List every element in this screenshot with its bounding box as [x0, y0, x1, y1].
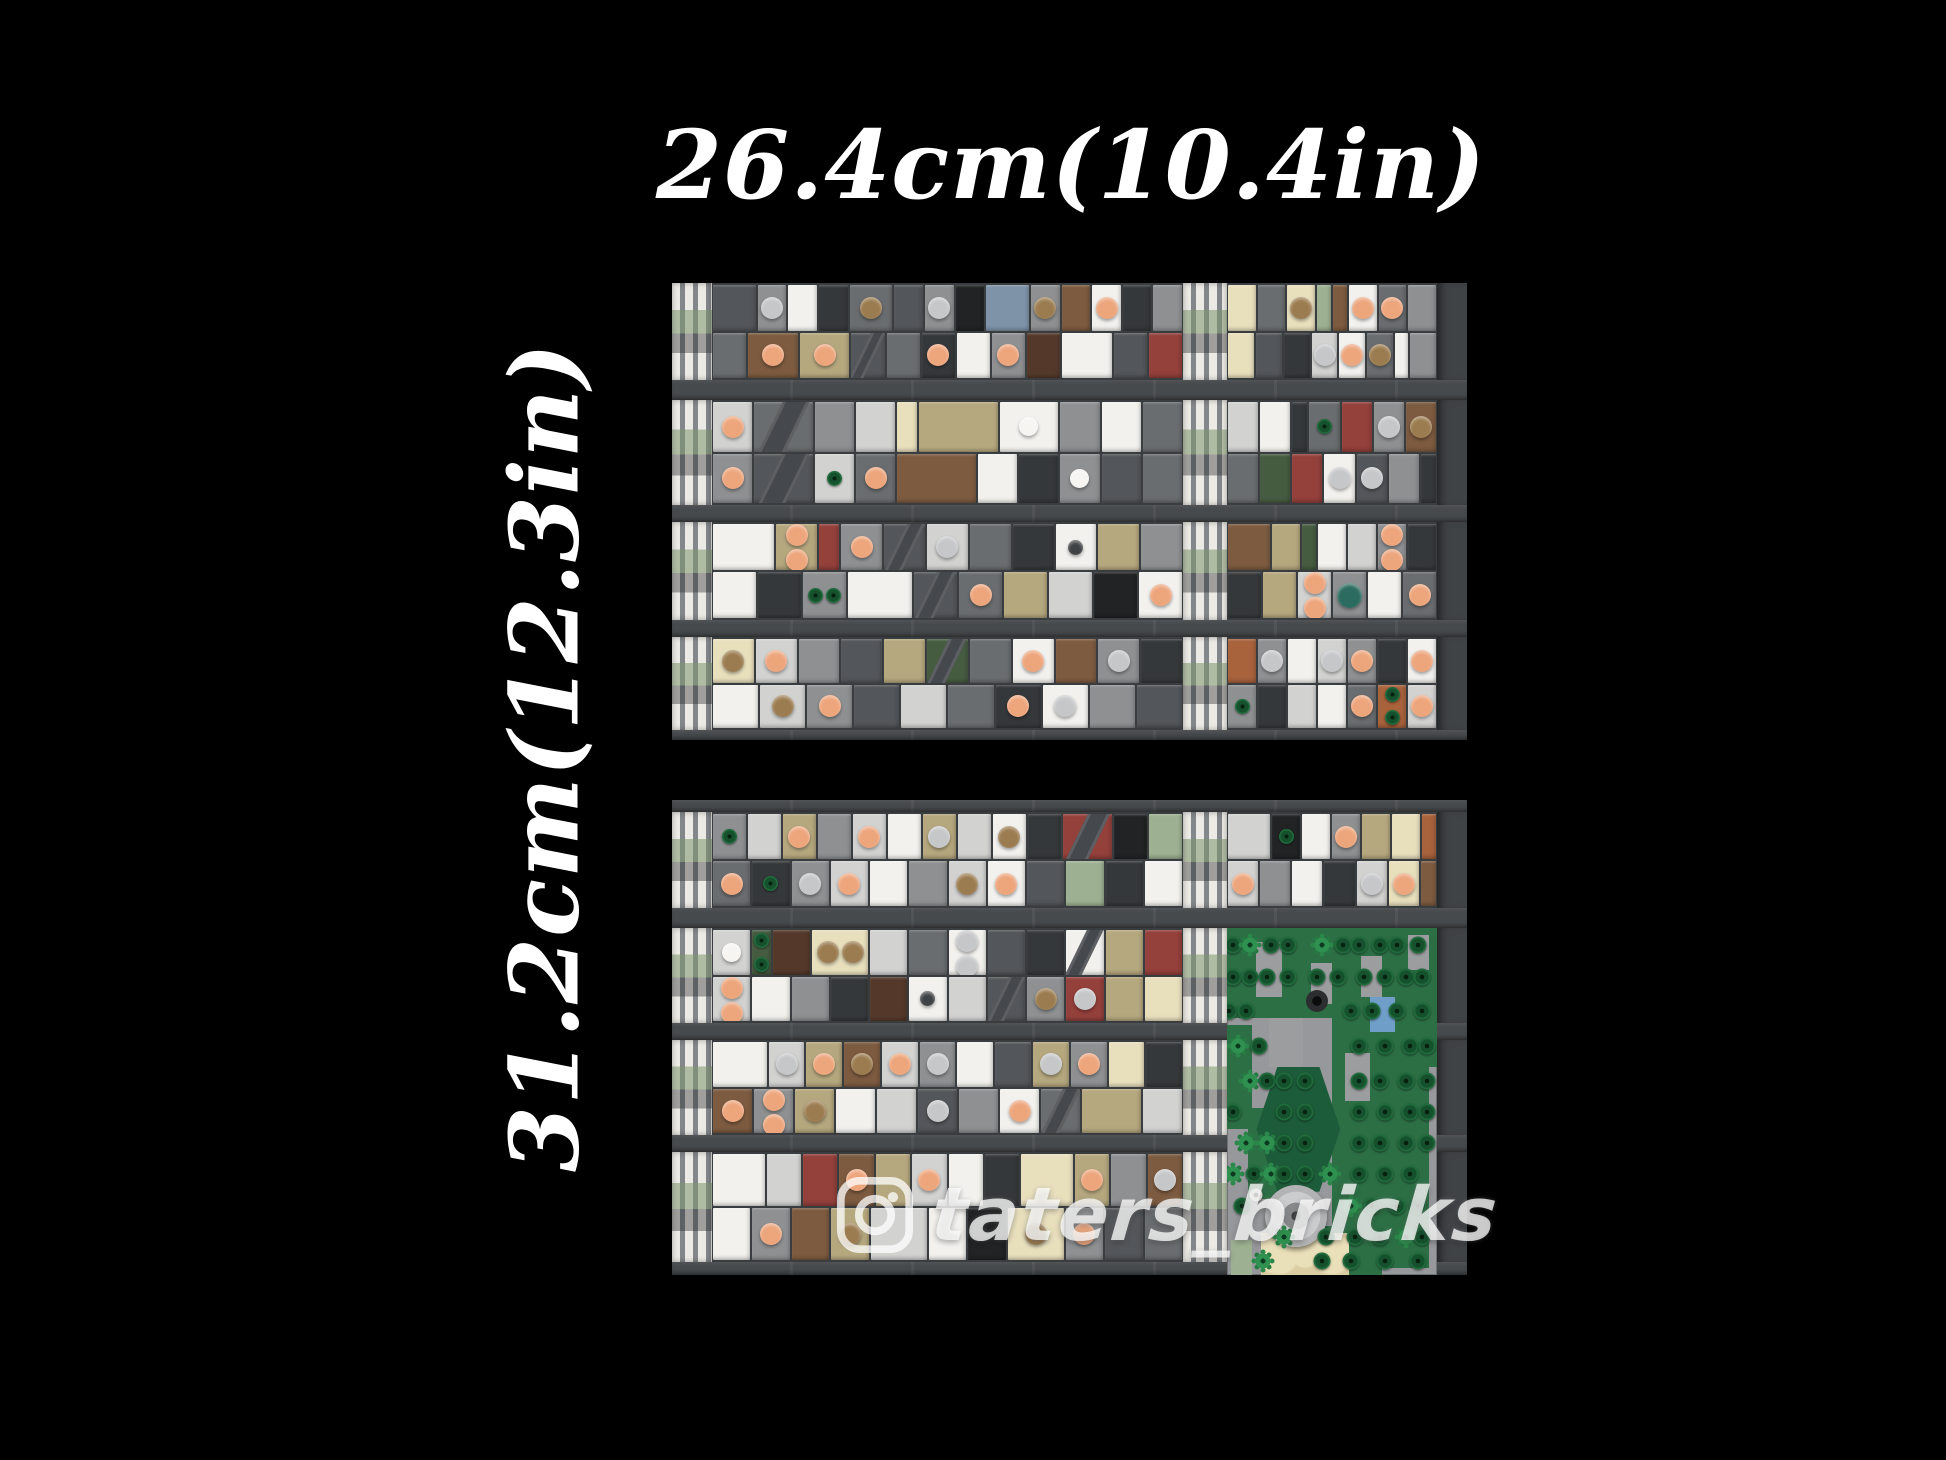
building-cell [1228, 333, 1254, 379]
furniture-circle [851, 1053, 873, 1075]
building-cell [988, 930, 1025, 975]
building-cell [713, 1089, 752, 1134]
building-strip [712, 860, 1183, 907]
furniture-circle [722, 650, 744, 672]
furniture-circle [788, 826, 810, 848]
tree-icon [1250, 1037, 1267, 1054]
building-cell [1000, 1089, 1039, 1134]
top-dimension-label: 26.4cm(10.4in) [656, 110, 1486, 221]
building-cell [1041, 1089, 1080, 1134]
building-cell [841, 639, 882, 683]
tree-icon [1237, 1003, 1254, 1020]
dark-bush [1306, 990, 1328, 1012]
furniture-circle [1150, 584, 1172, 606]
furniture-circle [1232, 873, 1254, 895]
building-cell [1288, 685, 1316, 729]
building-cell [1317, 285, 1331, 331]
tree-icon [1385, 687, 1400, 702]
building-cell [1153, 285, 1182, 331]
building-cell [1106, 861, 1143, 906]
street-row [672, 380, 1467, 400]
building-cell [1284, 333, 1310, 379]
building-strip [1227, 401, 1437, 453]
building-cell [1272, 814, 1300, 859]
tree-icon [1376, 1103, 1393, 1120]
building-cell [836, 1089, 875, 1134]
furniture-circle [786, 524, 808, 546]
crosswalk-column [1183, 522, 1227, 620]
building-cell [1378, 685, 1406, 729]
sidewalk-column [672, 812, 712, 908]
building-cell [1098, 639, 1139, 683]
watermark: taters_bricks [834, 1172, 1498, 1258]
building-cell [819, 524, 839, 570]
tree-icon [754, 933, 769, 948]
furniture-circle [1393, 873, 1415, 895]
building-cell [760, 685, 805, 729]
tree-icon [1414, 1003, 1431, 1020]
building-row [672, 400, 1467, 505]
building-cell [800, 333, 850, 379]
diagonal-street [754, 402, 813, 452]
building-cell [1106, 977, 1143, 1022]
furniture-circle [804, 1100, 826, 1122]
tree-icon [1243, 1073, 1258, 1088]
furniture-circle [858, 826, 880, 848]
furniture-circle [1381, 524, 1403, 546]
tree-icon [1376, 968, 1393, 985]
furniture-circle [956, 873, 978, 895]
building-strip [712, 284, 1183, 332]
building-strip [712, 523, 1183, 571]
building-strip [712, 976, 1183, 1023]
furniture-circle [860, 297, 882, 319]
building-cell [807, 685, 852, 729]
building-cell [920, 1042, 956, 1087]
building-cell [1378, 524, 1406, 570]
building-cell [877, 1089, 916, 1134]
tree-icon [827, 471, 842, 486]
building-cell [1143, 454, 1182, 504]
diagonal-street [988, 977, 1025, 1022]
building-cell [754, 454, 813, 504]
building-cell [1013, 639, 1054, 683]
building-cell [1143, 1089, 1182, 1134]
building-cell [1292, 861, 1322, 906]
building-cell [919, 402, 997, 452]
building-cell [1027, 930, 1064, 975]
stage: 26.4cm(10.4in) 31.2cm(12.3in) taters_bri… [0, 0, 1946, 1460]
furniture-circle [721, 1002, 743, 1022]
furniture-circle [762, 344, 784, 366]
building-cell [792, 861, 829, 906]
building-row [672, 283, 1467, 380]
building-cell [1228, 285, 1256, 331]
building-cell [925, 285, 954, 331]
building-strip [1227, 453, 1437, 505]
building-cell [1028, 814, 1061, 859]
furniture-circle [1361, 467, 1383, 489]
building-cell [992, 333, 1025, 379]
building-cell [713, 1208, 750, 1260]
furniture-circle [763, 1114, 785, 1134]
building-cell [767, 1154, 801, 1206]
tree-icon [1410, 937, 1427, 954]
building-cell [956, 285, 985, 331]
building-cell [1298, 572, 1331, 618]
building-block [1227, 637, 1437, 730]
paving-patch [1269, 1018, 1303, 1067]
furniture-circle [1411, 650, 1433, 672]
tree-icon [1397, 968, 1414, 985]
street-edge-column [1437, 1040, 1467, 1135]
furniture-circle [956, 930, 978, 952]
building-cell [870, 977, 907, 1022]
furniture-circle [765, 650, 787, 672]
building-cell [776, 524, 817, 570]
furniture-circle [1381, 549, 1403, 570]
building-cell [970, 639, 1011, 683]
tree-icon [1243, 938, 1258, 953]
building-cell [957, 1042, 993, 1087]
building-cell [927, 524, 968, 570]
furniture-circle [889, 1053, 911, 1075]
tree-icon [1334, 937, 1351, 954]
building-cell [978, 454, 1017, 504]
furniture-circle [722, 943, 741, 962]
furniture-circle [851, 536, 873, 558]
building-cell [1143, 402, 1182, 452]
building-cell [713, 572, 756, 618]
building-cell [957, 333, 990, 379]
tree-icon [1242, 968, 1259, 985]
building-cell [856, 454, 895, 504]
building-cell [897, 454, 975, 504]
building-cell [1090, 685, 1135, 729]
tree-icon [1238, 1136, 1253, 1151]
building-cell [754, 1089, 793, 1134]
furniture-circle [799, 873, 821, 895]
building-cell [914, 572, 957, 618]
furniture-circle [1381, 297, 1403, 319]
building-strip [712, 929, 1183, 976]
street-edge-column [1437, 283, 1467, 380]
furniture-circle [1410, 416, 1432, 438]
tree-icon [1279, 937, 1296, 954]
furniture-circle [1361, 873, 1383, 895]
building-cell [1395, 333, 1408, 379]
street-edge-column [1437, 637, 1467, 730]
building-cell [1256, 333, 1282, 379]
building-cell [1092, 285, 1121, 331]
furniture-circle [995, 873, 1017, 895]
building-strip [1227, 523, 1437, 571]
tree-icon [1418, 1037, 1435, 1054]
furniture-circle [1290, 297, 1312, 319]
tree-icon [1258, 968, 1275, 985]
building-cell [1145, 977, 1182, 1022]
furniture-circle [842, 941, 864, 963]
building-row [672, 812, 1467, 908]
building-cell [1123, 285, 1152, 331]
tree-icon [1296, 1072, 1313, 1089]
left-dimension-label: 31.2cm(12.3in) [490, 342, 601, 1172]
sidewalk-column [672, 400, 712, 505]
building-cell [1348, 639, 1376, 683]
building-cell [1392, 814, 1420, 859]
building-cell [756, 639, 797, 683]
building-cell [1258, 639, 1286, 683]
building-cell [851, 333, 884, 379]
tree-icon [1314, 938, 1329, 953]
building-cell [918, 1089, 957, 1134]
building-cell [1004, 572, 1047, 618]
tree-icon [1309, 968, 1326, 985]
building-cell [1410, 333, 1436, 379]
furniture-circle [927, 1053, 949, 1075]
tree-icon [1351, 1072, 1368, 1089]
furniture-circle [1369, 344, 1391, 366]
building-cell [1060, 454, 1099, 504]
tree-icon [763, 876, 778, 891]
building-cell [1374, 402, 1404, 452]
building-cell [1318, 524, 1346, 570]
building-cell [1027, 861, 1064, 906]
diagonal-street [914, 572, 957, 618]
building-cell [819, 285, 848, 331]
building-cell [1149, 814, 1182, 859]
building-cell [870, 861, 907, 906]
building-cell [1368, 572, 1401, 618]
building-block [1227, 400, 1437, 505]
building-cell [831, 977, 868, 1022]
sidewalk-column [672, 1040, 712, 1135]
furniture-circle [1019, 417, 1038, 436]
furniture-circle [817, 941, 839, 963]
street-row [672, 800, 1467, 812]
building-cell [1348, 524, 1376, 570]
building-cell [888, 814, 921, 859]
building-strip [1227, 684, 1437, 730]
building-cell [909, 930, 946, 975]
building-cell [850, 285, 893, 331]
crosswalk-column [1183, 637, 1227, 730]
building-cell [949, 930, 986, 975]
building-strip [1227, 571, 1437, 619]
building-cell [996, 685, 1041, 729]
building-block [712, 1040, 1183, 1135]
building-cell [1260, 861, 1290, 906]
tree-icon [1317, 419, 1332, 434]
building-cell [1263, 572, 1296, 618]
building-cell [882, 1042, 918, 1087]
building-cell [1302, 524, 1316, 570]
building-cell [769, 1042, 805, 1087]
building-block [1227, 522, 1437, 620]
crosswalk-column [1183, 283, 1227, 380]
furniture-circle [1352, 297, 1374, 319]
tree-icon [1372, 1072, 1389, 1089]
building-cell [803, 1154, 837, 1206]
building-block [1227, 812, 1437, 908]
building-cell [948, 685, 993, 729]
sidewalk-column [672, 637, 712, 730]
building-cell [923, 814, 956, 859]
building-cell [1324, 454, 1354, 504]
building-cell [927, 639, 968, 683]
tree-icon [1351, 1103, 1368, 1120]
tree-icon [1351, 1037, 1368, 1054]
tree-icon [754, 957, 769, 972]
building-cell [1260, 454, 1290, 504]
furniture-circle [936, 536, 958, 558]
building-cell [1109, 1042, 1145, 1087]
building-strip [712, 401, 1183, 453]
building-cell [1031, 285, 1060, 331]
building-cell [713, 524, 774, 570]
watermark-handle: taters_bricks [928, 1172, 1502, 1258]
building-cell [1056, 639, 1097, 683]
furniture-circle [763, 1089, 785, 1111]
sidewalk-column [672, 1152, 712, 1262]
tree-icon [1275, 1103, 1292, 1120]
building-cell [1027, 977, 1064, 1022]
building-cell [754, 402, 813, 452]
tree-icon [1397, 1135, 1414, 1152]
building-cell [1292, 454, 1322, 504]
building-cell [752, 977, 789, 1022]
building-cell [1098, 524, 1139, 570]
building-cell [897, 402, 917, 452]
building-cell [713, 639, 754, 683]
building-cell [1288, 639, 1316, 683]
building-cell [1228, 402, 1258, 452]
diagonal-street [754, 454, 813, 504]
furniture-circle [1351, 695, 1373, 717]
building-cell [815, 454, 854, 504]
building-cell [758, 572, 801, 618]
furniture-circle [1108, 650, 1130, 672]
building-cell [1228, 814, 1270, 859]
building-strip [712, 332, 1183, 380]
furniture-circle [1409, 584, 1431, 606]
sidewalk-column [672, 928, 712, 1023]
furniture-circle [928, 297, 950, 319]
furniture-circle [761, 297, 783, 319]
building-cell [1357, 454, 1387, 504]
building-strip [712, 1088, 1183, 1135]
building-cell [1062, 285, 1091, 331]
building-cell [848, 572, 912, 618]
building-cell [1408, 524, 1436, 570]
building-cell [748, 814, 781, 859]
building-cell [1066, 930, 1103, 975]
building-cell [959, 572, 1002, 618]
tree-icon [1414, 968, 1431, 985]
building-cell [1102, 402, 1141, 452]
building-cell [995, 1042, 1031, 1087]
building-cell [1357, 861, 1387, 906]
building-cell [1228, 454, 1258, 504]
building-cell [713, 285, 756, 331]
building-cell [959, 1089, 998, 1134]
building-cell [909, 977, 946, 1022]
building-block [712, 400, 1183, 505]
furniture-circle [786, 549, 808, 570]
building-block [712, 812, 1183, 908]
tree-icon [1230, 1038, 1245, 1053]
diagonal-street [851, 333, 884, 379]
building-cell [799, 639, 840, 683]
building-cell [988, 977, 1025, 1022]
building-cell [1228, 572, 1261, 618]
tree-icon [1275, 1135, 1292, 1152]
furniture-circle [1304, 572, 1326, 594]
tree-icon [1279, 829, 1294, 844]
diagonal-street [1041, 1089, 1080, 1134]
building-cell [1272, 524, 1300, 570]
building-cell [1287, 285, 1315, 331]
furniture-circle [1261, 650, 1283, 672]
building-cell [713, 333, 746, 379]
tree-icon [1263, 937, 1280, 954]
building-cell [1102, 454, 1141, 504]
building-cell [856, 402, 895, 452]
building-cell [1332, 814, 1360, 859]
furniture-circle [1321, 650, 1343, 672]
building-cell [884, 639, 925, 683]
building-cell [1146, 1042, 1182, 1087]
building-cell [1019, 454, 1058, 504]
building-cell [758, 285, 787, 331]
building-cell [1342, 402, 1372, 452]
building-cell [949, 861, 986, 906]
building-cell [748, 333, 798, 379]
street-row [672, 730, 1467, 740]
building-cell [752, 930, 771, 975]
furniture-circle [1314, 344, 1336, 366]
tree-icon [1389, 1003, 1406, 1020]
furniture-circle [1335, 826, 1357, 848]
building-cell [713, 1154, 765, 1206]
furniture-circle [760, 1223, 782, 1245]
building-cell [713, 861, 750, 906]
building-strip [1227, 860, 1437, 907]
building-cell [1292, 402, 1307, 452]
furniture-circle [1411, 695, 1433, 717]
diagonal-street [1063, 814, 1112, 859]
building-strip [1227, 638, 1437, 684]
building-cell [853, 814, 886, 859]
tree-icon [1385, 710, 1400, 725]
building-cell [1137, 685, 1182, 729]
tree-icon [1235, 699, 1250, 714]
tree-icon [1418, 1103, 1435, 1120]
building-cell [1106, 930, 1143, 975]
building-cell [1421, 861, 1436, 906]
building-cell [1349, 285, 1377, 331]
building-cell [884, 524, 925, 570]
city-panel-top [672, 283, 1467, 740]
furniture-circle [1329, 467, 1351, 489]
tree-icon [1372, 1135, 1389, 1152]
building-strip [712, 684, 1183, 730]
building-strip [712, 571, 1183, 619]
building-cell [1056, 524, 1097, 570]
furniture-circle [813, 1053, 835, 1075]
building-cell [1145, 930, 1182, 975]
building-cell [1228, 524, 1270, 570]
